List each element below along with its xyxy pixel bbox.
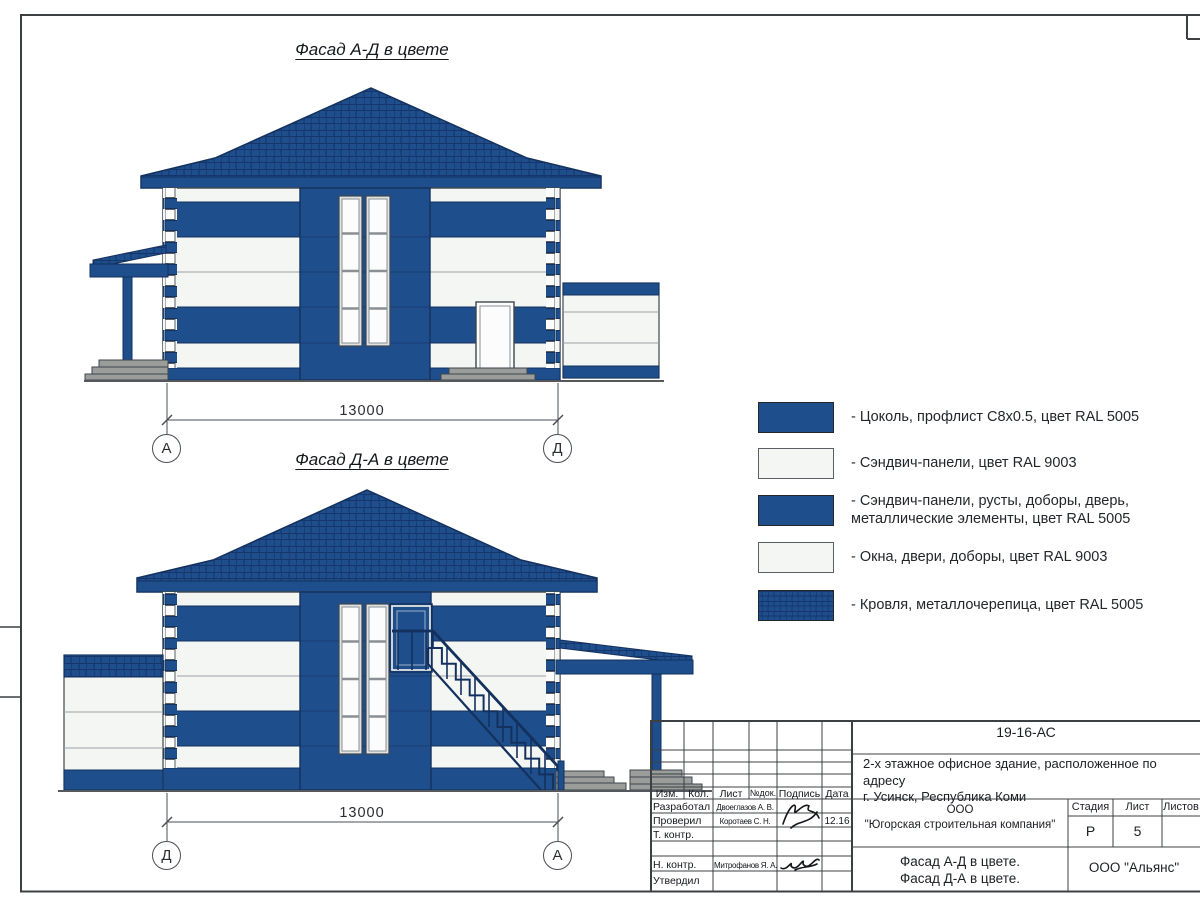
facade2-porch — [556, 640, 702, 790]
col-header-sign: Подпись — [777, 788, 822, 800]
signature-ncontrol — [781, 859, 819, 870]
facade2-title: Фасад Д-А в цвете — [252, 450, 492, 470]
drawing-name: Фасад А-Д в цвете. Фасад Д-А в цвете. — [853, 853, 1067, 887]
project-title: 2-х этажное офисное здание, расположенно… — [863, 756, 1193, 806]
sheet-value: 5 — [1113, 823, 1162, 839]
legend-swatch-openings — [758, 542, 834, 573]
legend-item: - Окна, двери, доборы, цвет RAL 9003 — [758, 541, 1107, 573]
row-role-ncontrol: Н. контр. — [653, 859, 696, 871]
contractor-name: ООО "Альянс" — [1068, 860, 1200, 875]
doc-number: 19-16-АС — [852, 724, 1200, 740]
row-name-ncontrol: Митрофанов Я. А. — [714, 861, 776, 870]
facade1-annex — [563, 283, 659, 378]
col-header-kol: Кол. — [684, 788, 713, 800]
facade2-roof-fascia — [137, 581, 597, 592]
facade2-annex — [64, 655, 163, 790]
col-header-ndoc: №док. — [749, 788, 777, 798]
legend-swatch-plinth — [758, 402, 834, 433]
facade1-quoins-right — [546, 188, 560, 368]
legend-label: - Цоколь, профлист С8х0.5, цвет RAL 5005 — [851, 408, 1139, 426]
legend-label: - Сэндвич-панели, русты, доборы, дверь, … — [851, 492, 1130, 528]
legend-label: - Кровля, металлочерепица, цвет RAL 5005 — [851, 596, 1143, 614]
facade1-center-panel — [300, 188, 430, 380]
legend-item: - Цоколь, профлист С8х0.5, цвет RAL 5005 — [758, 401, 1139, 433]
legend-swatch-roof — [758, 590, 834, 621]
col-header-izm: Изм. — [650, 788, 684, 800]
facade2-dimension-value: 13000 — [312, 805, 412, 821]
facade1-dimension-value: 13000 — [312, 403, 412, 419]
facade1-drawing — [84, 88, 664, 434]
facade2-window-2 — [366, 604, 389, 754]
sheet-label: Лист — [1113, 801, 1162, 813]
drawing-sheet: { "drawing": { "facade1": {"title": "Фас… — [0, 0, 1200, 900]
facade2-quoins-right — [546, 592, 560, 768]
facade1-door — [476, 302, 514, 377]
company-name: ООО "Югорская строительная компания" — [853, 803, 1067, 833]
legend-swatch-panels — [758, 448, 834, 479]
legend-swatch-blue-elements — [758, 495, 834, 526]
facade1-window-2 — [366, 196, 390, 346]
facade1-axis-left: А — [152, 434, 181, 463]
signature-developer — [783, 805, 819, 828]
facade1-axis-right: Д — [543, 434, 572, 463]
facade2-window-1 — [339, 604, 362, 754]
facade1-roof — [141, 88, 601, 188]
col-header-date: Дата — [822, 788, 852, 800]
row-name-developer: Двоеглазов А. В. — [714, 803, 776, 812]
facade2-stair-steps — [556, 771, 626, 790]
facade1-window-1 — [339, 196, 362, 346]
facade1-door-steps — [441, 368, 535, 380]
legend-item: - Сэндвич-панели, цвет RAL 9003 — [758, 447, 1077, 479]
facade1-roof-fascia — [141, 177, 601, 188]
stair-newel — [558, 761, 564, 790]
facade2-drawing — [58, 490, 712, 841]
legend-label: - Окна, двери, доборы, цвет RAL 9003 — [851, 548, 1107, 566]
legend-item: - Кровля, металлочерепица, цвет RAL 5005 — [758, 589, 1143, 621]
col-header-list: Лист — [713, 788, 749, 800]
row-name-checker: Коротаев С. Н. — [714, 817, 776, 826]
row-role-developer: Разработал — [653, 801, 710, 813]
stage-value: Р — [1068, 823, 1113, 839]
row-role-tcontrol: Т. контр. — [653, 829, 694, 841]
legend-item: - Сэндвич-панели, русты, доборы, дверь, … — [758, 494, 1130, 526]
facade2-roof — [137, 490, 597, 592]
facade2-quoins-left — [163, 592, 177, 768]
row-role-approver: Утвердил — [653, 875, 700, 887]
facade1-quoins-left — [163, 188, 177, 368]
facade2-axis-left: Д — [152, 841, 181, 870]
facade1-title: Фасад А-Д в цвете — [252, 40, 492, 60]
row-date-checker: 12.16 — [822, 816, 852, 827]
sheets-label: Листов — [1160, 801, 1200, 813]
facade1-porch — [85, 245, 168, 380]
facade2-axis-right: А — [543, 841, 572, 870]
legend-label: - Сэндвич-панели, цвет RAL 9003 — [851, 454, 1077, 472]
facade1-porch-column — [123, 277, 132, 361]
row-role-checker: Проверил — [653, 815, 701, 827]
stage-label: Стадия — [1068, 801, 1113, 813]
